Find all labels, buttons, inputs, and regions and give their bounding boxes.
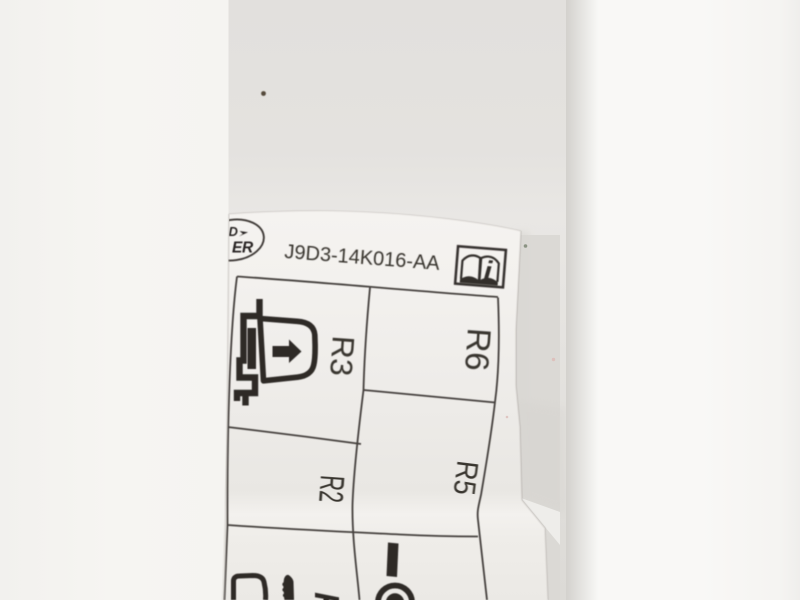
svg-text:ER: ER [232,240,254,257]
svg-text:R2: R2 [310,474,350,504]
svg-text:R6: R6 [457,327,497,372]
svg-text:R5: R5 [446,459,484,497]
svg-text:R3: R3 [323,335,362,378]
svg-text:D: D [229,224,239,239]
